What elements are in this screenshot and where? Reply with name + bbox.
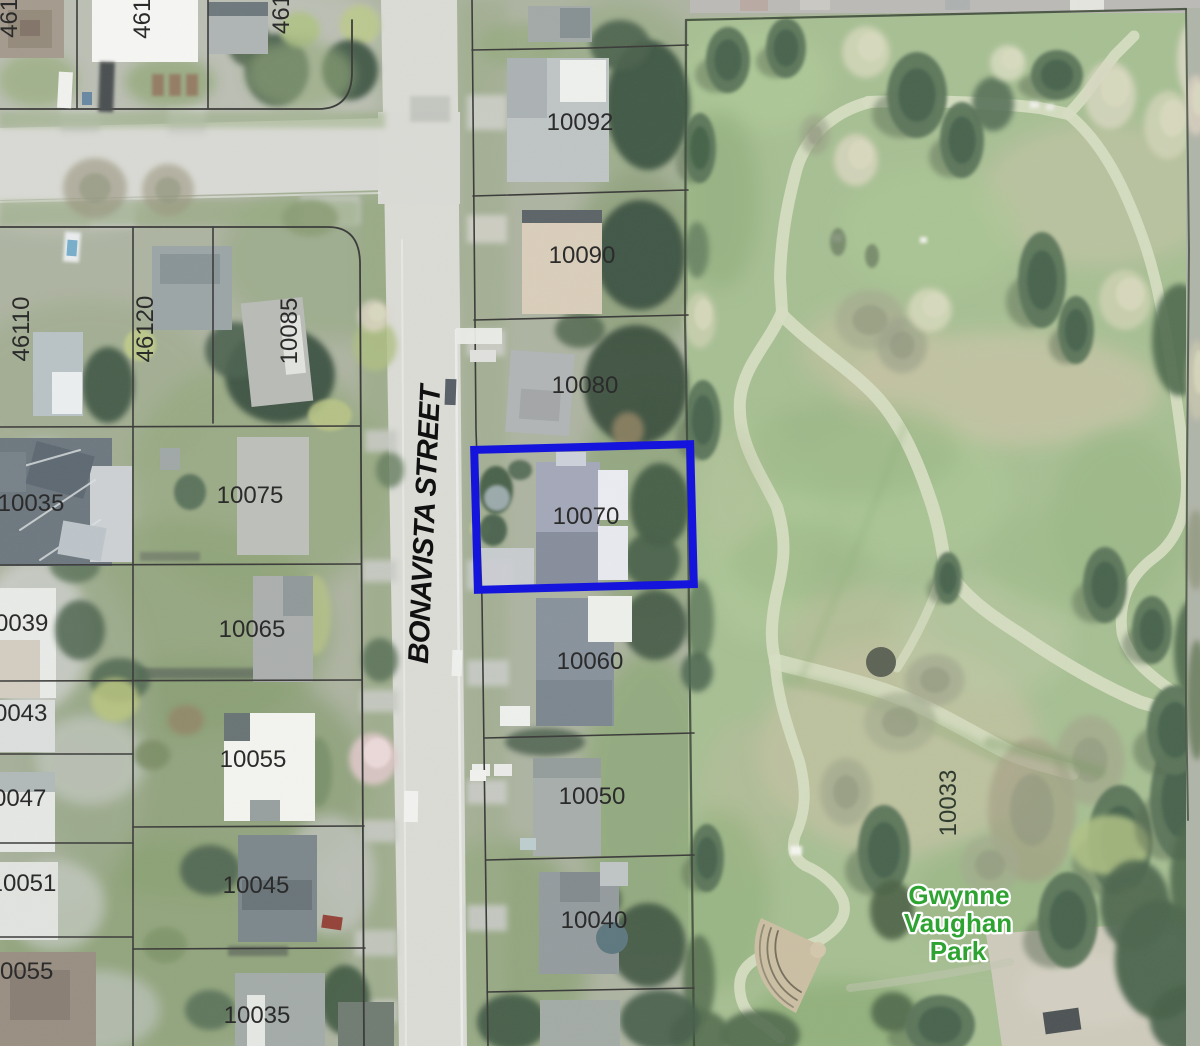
svg-text:10055: 10055 (220, 746, 287, 773)
svg-text:10050: 10050 (559, 783, 626, 810)
svg-text:10092: 10092 (547, 109, 614, 136)
svg-text:4611: 4611 (0, 0, 23, 38)
svg-text:10035: 10035 (224, 1002, 291, 1029)
svg-text:10039: 10039 (0, 610, 48, 637)
svg-text:10085: 10085 (276, 298, 303, 365)
svg-text:10060: 10060 (557, 648, 624, 675)
svg-text:461: 461 (268, 0, 295, 34)
svg-text:Vaughan: Vaughan (904, 908, 1012, 938)
svg-text:46120: 46120 (132, 296, 159, 363)
svg-text:10047: 10047 (0, 785, 46, 812)
svg-text:10040: 10040 (561, 907, 628, 934)
svg-text:10075: 10075 (217, 482, 284, 509)
svg-text:Park: Park (930, 936, 987, 966)
svg-text:46110: 46110 (8, 297, 35, 362)
svg-text:10065: 10065 (219, 616, 286, 643)
svg-text:10045: 10045 (223, 872, 290, 899)
svg-text:10080: 10080 (552, 372, 619, 399)
svg-text:10090: 10090 (549, 242, 616, 269)
svg-text:10043: 10043 (0, 700, 47, 727)
svg-text:10055: 10055 (0, 958, 53, 985)
svg-text:4612: 4612 (129, 0, 156, 39)
svg-text:10051: 10051 (0, 870, 56, 897)
svg-text:10070: 10070 (553, 503, 620, 530)
svg-text:Gwynne: Gwynne (908, 880, 1009, 910)
svg-text:10033: 10033 (935, 770, 962, 837)
svg-text:10035: 10035 (0, 490, 64, 517)
